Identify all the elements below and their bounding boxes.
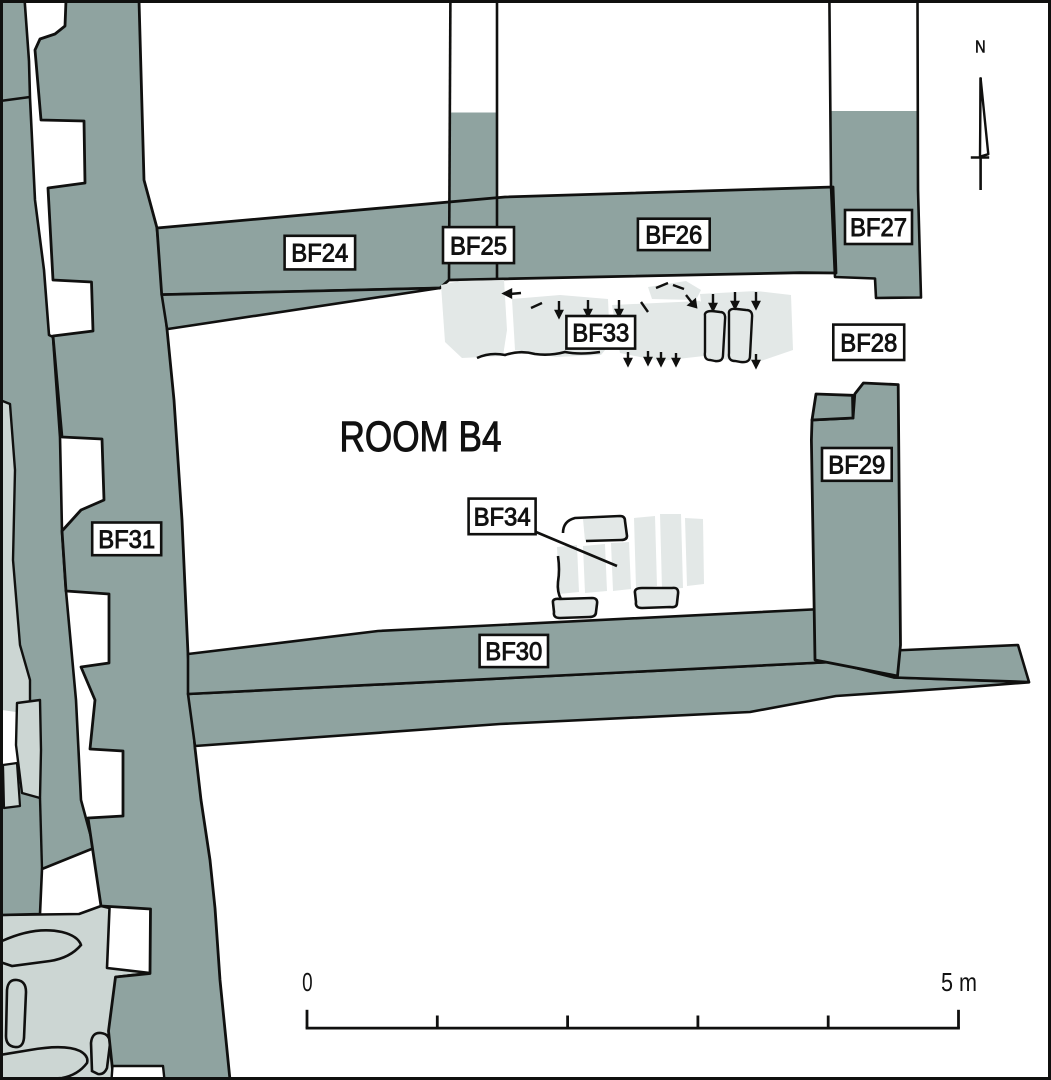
- svg-text:BF25: BF25: [450, 233, 507, 261]
- svg-text:BF34: BF34: [474, 504, 531, 532]
- svg-text:N: N: [975, 37, 986, 57]
- svg-text:BF24: BF24: [291, 240, 348, 268]
- svg-text:BF30: BF30: [485, 638, 542, 666]
- svg-text:5 m: 5 m: [941, 967, 977, 997]
- svg-text:BF28: BF28: [840, 330, 897, 358]
- svg-text:BF27: BF27: [850, 214, 907, 242]
- svg-text:BF29: BF29: [828, 452, 885, 480]
- svg-text:BF26: BF26: [645, 222, 702, 250]
- svg-text:ROOM B4: ROOM B4: [340, 413, 502, 461]
- svg-text:BF33: BF33: [572, 320, 629, 348]
- svg-text:BF31: BF31: [98, 526, 155, 554]
- svg-text:0: 0: [302, 967, 313, 997]
